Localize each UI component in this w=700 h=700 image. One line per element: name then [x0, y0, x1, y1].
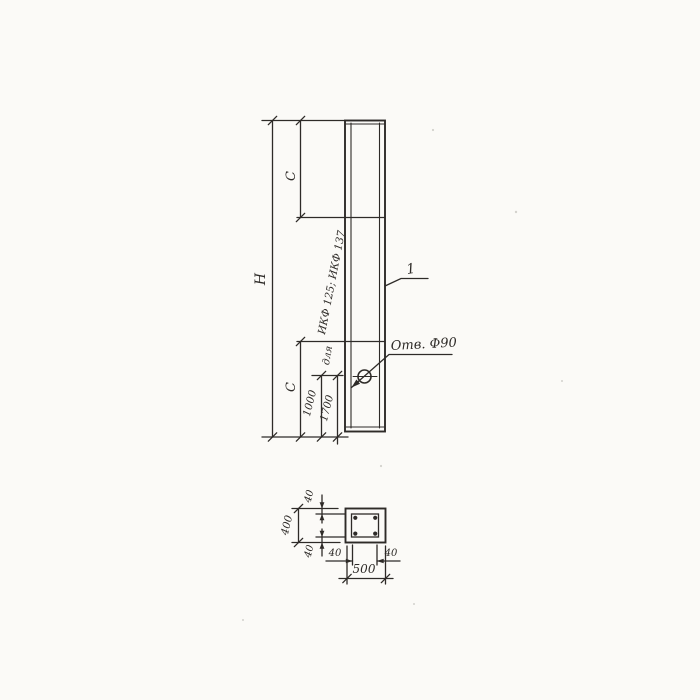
drawing-svg: H C C 1000 1700 для ИКФ 125; ИКФ 137 Отв… — [0, 0, 700, 700]
dim-label-overall-height: H — [253, 272, 269, 286]
dim-label-segment-top: C — [284, 171, 299, 181]
section-dim-wall-right-label: 40 — [384, 548, 398, 559]
paper-background — [0, 0, 700, 700]
dim-label-segment-bottom: C — [284, 382, 299, 392]
drawing-sheet: H C C 1000 1700 для ИКФ 125; ИКФ 137 Отв… — [0, 0, 700, 700]
section-dim-width-label: 500 — [353, 562, 376, 576]
section-dim-wall-left-label: 40 — [328, 548, 342, 559]
